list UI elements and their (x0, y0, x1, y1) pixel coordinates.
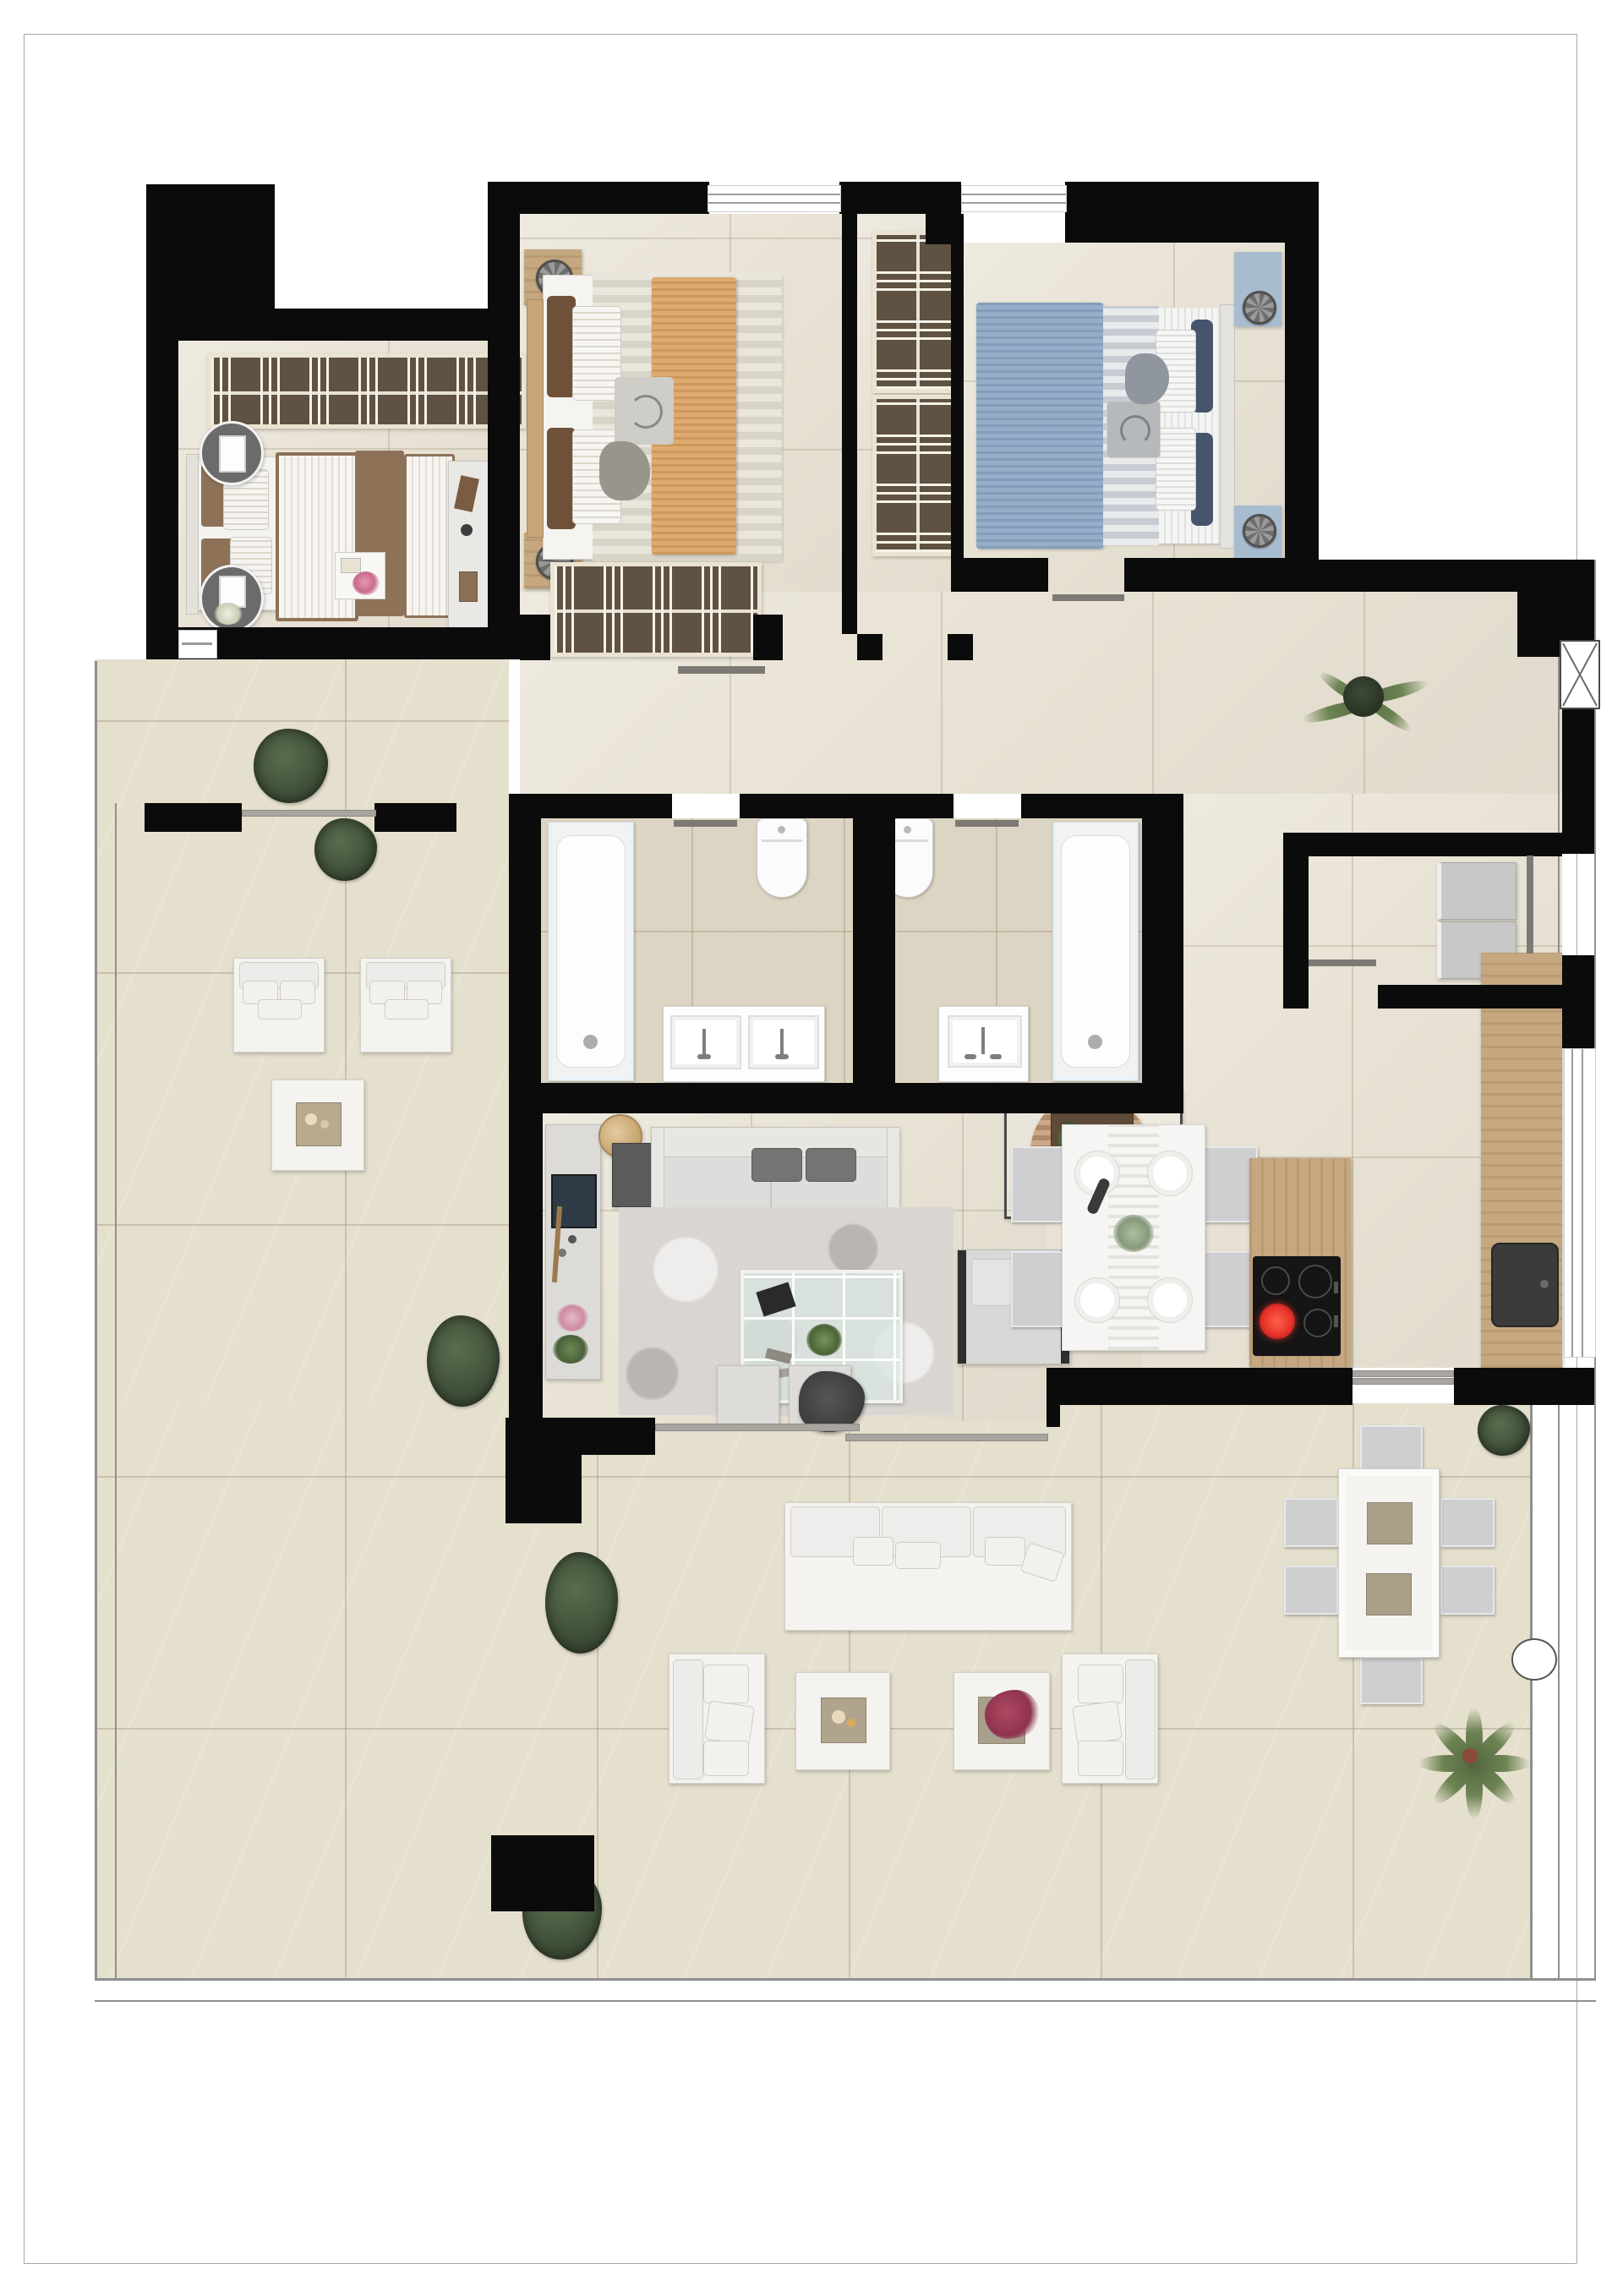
outdoor-sofa (784, 1502, 1072, 1631)
outdoor-armchair-1 (669, 1654, 765, 1784)
master-terrace-opening (178, 630, 217, 659)
railing-bottom (95, 1978, 1596, 1981)
wall-kitchen-bottom (1060, 1368, 1352, 1405)
bed-tray (335, 552, 385, 599)
terrace-partition-stub-2 (374, 803, 456, 832)
table-plant (806, 1324, 842, 1356)
sliding-door-living-panel-2 (845, 1434, 1048, 1441)
outdoor-chair-right-1 (1440, 1498, 1495, 1547)
wall-jog (1046, 1368, 1060, 1427)
bedroom3-rug-top (1234, 252, 1281, 326)
closet-wardrobe-1 (872, 231, 959, 393)
deco-pillow-c (1107, 401, 1161, 458)
dining-chair-2 (1011, 1251, 1067, 1327)
headboard (186, 454, 199, 615)
wall-right-mid (1562, 707, 1594, 854)
wall-bath-bottom (509, 1083, 1183, 1113)
terrace-partition-slider (242, 810, 376, 817)
wall-closet-post-1 (857, 634, 883, 660)
terrace-planter-block (491, 1835, 594, 1911)
kitchen-island (1249, 1158, 1351, 1367)
wall-master-top (146, 309, 520, 341)
window-kitchen-right (1564, 1048, 1596, 1358)
wall-master-left (146, 184, 178, 659)
black-book (756, 1282, 795, 1317)
wall-top-b-tab (926, 214, 953, 244)
flowers (352, 571, 380, 595)
outdoor-chair-bottom (1360, 1657, 1423, 1704)
outdoor-chair-right-2 (1440, 1566, 1495, 1615)
outdoor-table-2 (954, 1672, 1050, 1770)
wall-bedroom2-bottom-r (753, 615, 783, 660)
railing-left-outer (95, 661, 97, 1980)
pink-flowers (556, 1304, 588, 1331)
outdoor-dining-table (1338, 1468, 1440, 1658)
door-entry (1527, 856, 1533, 954)
master-nightstand-bottom (199, 565, 264, 632)
window-top-1 (708, 185, 841, 212)
green-plant (553, 1335, 588, 1364)
terrace-partition-stub-1 (145, 803, 242, 832)
dining-table (1062, 1124, 1205, 1351)
bathtub-2 (1052, 822, 1139, 1081)
lounge-chair-2 (360, 958, 451, 1052)
terrace-side-table (271, 1080, 364, 1171)
bedroom3-bed (981, 309, 1221, 543)
washer (1437, 862, 1516, 920)
door-bath-2 (955, 820, 1019, 827)
master-wardrobe (207, 353, 526, 429)
wall-closet-right (951, 214, 964, 592)
kitchen-counter-right (1481, 953, 1562, 1368)
wall-bath-right (1142, 794, 1183, 1113)
outdoor-armchair-2 (1062, 1654, 1158, 1784)
wall-top-b (839, 182, 961, 214)
wall-right-upper (1562, 592, 1594, 642)
bedroom2-bed (543, 275, 781, 560)
red-flowers (985, 1690, 1041, 1739)
door-laundry (1309, 959, 1376, 966)
wall-closet-post-2 (948, 634, 973, 660)
dining-chair-1 (1011, 1146, 1067, 1222)
bathtub-1 (548, 822, 634, 1081)
wall-laundry-bottom-r (1378, 985, 1562, 1009)
wall-living-bottom-foot (505, 1455, 582, 1523)
entry-fern-plant (1306, 661, 1441, 742)
table-tray-2 (1366, 1573, 1412, 1615)
single-vanity (938, 1006, 1029, 1082)
wall-bath-left (509, 794, 541, 1113)
wall-living-left (509, 1113, 543, 1421)
wall-top-a (488, 182, 709, 214)
sideboard (545, 1124, 601, 1380)
table-tray-1 (1367, 1502, 1413, 1544)
outdoor-table-1 (795, 1672, 890, 1770)
white-flowers (214, 603, 243, 625)
wall-bedroom3-bottom-r (1124, 558, 1319, 592)
wall-closet-left (842, 214, 857, 634)
door-bedroom3 (1052, 594, 1124, 601)
round-column (1511, 1638, 1557, 1681)
door-bedroom2 (678, 666, 765, 674)
double-vanity (663, 1006, 825, 1082)
master-nightstand-top (199, 421, 264, 485)
window-right-glazed (1560, 640, 1600, 709)
outdoor-chair-top (1360, 1425, 1423, 1473)
wall-bottom-right (1454, 1368, 1594, 1405)
palm-plant (1410, 1704, 1537, 1823)
sliding-door-kitchen-panel-1 (1352, 1370, 1454, 1377)
headboard (1220, 304, 1235, 549)
wall-laundry-bottom-l (1283, 985, 1306, 1009)
wall-bath-top-2 (740, 794, 954, 818)
outdoor-chair-left-2 (1284, 1566, 1338, 1615)
door-bath-1 (674, 820, 737, 827)
master-desk (448, 461, 489, 631)
glazing-x-icon (1561, 642, 1598, 708)
sliding-door-living-panel-1 (655, 1424, 860, 1431)
tray (296, 1102, 342, 1146)
wall-bedroom3-bottom-l (964, 558, 1048, 592)
centerpiece (1113, 1215, 1154, 1252)
wall-bedroom2-bottom-l (520, 615, 550, 660)
tray (821, 1697, 866, 1743)
wall-bedroom3-right (1285, 182, 1319, 592)
outdoor-chair-left-1 (1284, 1498, 1338, 1547)
bedroom2-wardrobe (550, 562, 762, 657)
headboard (527, 299, 544, 538)
floor-plan-canvas (0, 0, 1623, 2296)
deco-pillow-c (615, 377, 674, 445)
wall-bath-divider (853, 818, 895, 1083)
wall-laundry-top (1283, 833, 1562, 856)
kitchen-sink (1491, 1243, 1559, 1327)
closet-wardrobe-2 (872, 395, 959, 556)
wall-right-low (1562, 955, 1594, 1048)
wall-bedroom3-top (1065, 182, 1319, 243)
wall-living-bottom-l (505, 1418, 655, 1455)
pouf-1 (717, 1365, 779, 1424)
cooktop (1253, 1256, 1341, 1356)
burner-red-hot (1260, 1304, 1295, 1339)
railing-right-terrace (1530, 1405, 1533, 1980)
railing-left-inner (115, 803, 117, 1980)
railing-bottom-outer (95, 2000, 1596, 2002)
sliding-door-kitchen-panel-2 (1352, 1378, 1454, 1385)
lounge-chair-1 (233, 958, 325, 1052)
wall-master-right (488, 341, 520, 659)
window-top-2 (961, 185, 1067, 212)
toilet-1 (757, 818, 807, 898)
